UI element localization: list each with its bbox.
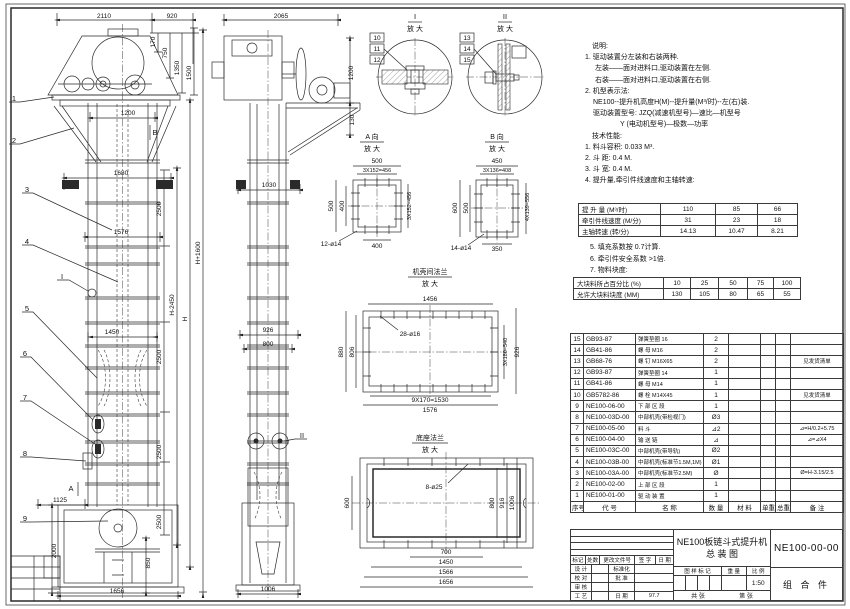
tb-cell [635,565,673,573]
perf-row: 提 升 量 (M³/时)1108566 [579,204,798,215]
bom-total-weight [776,423,791,434]
bom-seq: 9 [571,401,584,412]
balloon-14: 14 [463,46,471,53]
bom-remark [791,445,844,456]
bom-code: NE100-02-00 [584,479,636,490]
tb-process-label: 工 艺 [571,592,592,600]
perf-value: 66 [758,204,798,215]
dim-850: 850 [145,557,152,568]
bom-seq: 13 [571,356,584,367]
bom-qty: 1 [704,490,729,501]
bom-material [729,445,761,456]
tb-cell [592,574,609,582]
dim-400-a-left: 400 [339,200,346,211]
bom-name: 驱 动 装 置 [636,490,704,501]
balloon-12: 12 [373,57,381,64]
lump-value: 100 [774,278,801,289]
bom-unit-weight [761,423,776,434]
bom-qty: 1 [704,401,729,412]
bom-seq: 1 [571,490,584,501]
bom-material [729,345,761,356]
dim-350: 350 [492,246,503,253]
bom-unit-weight [761,389,776,400]
dim-750: 750 [162,47,169,58]
bom-remark [791,334,844,345]
bom-qty: 2 [704,356,729,367]
bom-header: 名 称 [636,501,704,512]
dim-700: 700 [441,549,452,556]
bom-qty: Ø1 [704,457,729,468]
bom-unit-weight [761,412,776,423]
dim-600-b: 600 [452,202,459,213]
stamp-header-scale: 比 例 [747,567,771,576]
bom-seq: 10 [571,389,584,400]
perf-label: 主轴转速 (转/分) [579,226,661,237]
bom-header: 单重 [761,501,776,512]
bom-total-weight [776,389,791,400]
bom-qty: Ø [704,468,729,479]
bom-code: NE100-03A-00 [584,468,636,479]
tb-standard-label: 标准化 [609,565,636,573]
balloon-15: 15 [463,57,471,64]
perf-value: 14.13 [661,226,716,237]
dim-14-holes: 14-ø14 [451,245,472,252]
bom-remark [791,345,844,356]
detail-a-mag: 放 大 [364,144,380,153]
bom-material [729,367,761,378]
dim-1125: 1125 [53,497,67,504]
drawing-title-line2: 总 装 图 [706,548,738,560]
bom-total-weight [776,345,791,356]
bom-row: 11GB41-86螺 母 M141 [571,378,844,389]
balloon-7: 7 [23,393,27,402]
bom-name: 螺 母 M16 [636,345,704,356]
bom-material [729,378,761,389]
note-line: 5. 填充系数按 0.7计算. [590,242,800,254]
bom-seq: 5 [571,445,584,456]
dim-450: 450 [492,158,503,165]
lump-label: 大块料所占百分比 (%) [574,278,664,289]
dim-1450: 1450 [105,329,120,336]
dim-12-holes: 12-ø14 [321,241,342,248]
perf-value: 31 [661,215,716,226]
tb-check-label: 校 对 [571,574,592,582]
note-line: 3. 斗 宽: 0.4 M. [578,164,842,175]
bom-remark [791,412,844,423]
rev-header-count: 处数 [586,556,601,564]
stamp-boxes [674,576,722,590]
rev-header-docno: 更改文件号 [600,556,634,564]
lump-value: 130 [664,289,691,300]
detail-ii-title: II [503,12,507,21]
bom-code: GB93-87 [584,334,636,345]
bom-row: 7NE100-05-00料 斗⊿2⊿=H/0.2+5.75 [571,423,844,434]
perf-label: 提 升 量 (M³/时) [579,204,661,215]
detail-b-title: B 向 [490,132,504,141]
balloon-3: 3 [25,185,29,194]
performance-table: 提 升 量 (M³/时)1108566牵引件线速度 (M/分)312318主轴转… [578,203,798,237]
detail-b-mag: 放 大 [489,144,505,153]
dim-500-a-top: 500 [372,158,383,165]
dim-130: 130 [349,114,356,125]
dim-2065: 2065 [274,13,289,20]
balloon-10: 10 [373,35,381,42]
bom-remark: ⊿=⊿X4 [791,434,844,445]
bom-code: GB68-76 [584,356,636,367]
dim-3x180: 3X180=540 [503,338,509,366]
bom-qty: 2 [704,345,729,356]
flange-mag: 放 大 [422,279,438,288]
bom-row: 2NE100-02-00上 部 区 段1 [571,479,844,490]
tb-design-label: 设 计 [571,565,592,573]
dim-h-1600: H+1600 [195,241,202,264]
bom-qty: ⊿2 [704,423,729,434]
tb-cell [609,583,636,591]
dim-2500-a: 2500 [156,201,163,216]
bom-total-weight [776,479,791,490]
tb-cell [592,565,609,573]
detail-view-base-flange: 底座法兰 放 大 8-ø25 600 800 916 1006 700 1450… [344,433,540,587]
bom-seq: 2 [571,479,584,490]
bom-code: GB41-86 [584,345,636,356]
balloon-1: 1 [12,94,16,103]
bom-seq: 11 [571,378,584,389]
bom-name: 螺 母 M14 [636,378,704,389]
dim-920: 920 [167,13,178,20]
side-elevation-view: 2065 1200 130 1030 926 800 II 1006 [212,13,360,598]
parts-list-table: 15GB93-87弹簧垫圈 16214GB41-86螺 母 M16213GB68… [570,333,844,513]
dim-2500-c: 2500 [156,444,163,459]
tb-audit-label: 审 核 [571,583,592,591]
bom-row: 12GB93-87弹簧垫圈 141 [571,367,844,378]
front-elevation-view [44,24,184,598]
bom-row: 8NE100-03D-00中部机壳(带检视门)Ø3 [571,412,844,423]
bom-seq: 7 [571,423,584,434]
detail-view-ii: II 放 大 13 14 15 [460,12,544,116]
balloon-9: 9 [23,514,27,523]
note-line: 4. 提升量,牵引件线速度和主轴转速: [578,175,842,186]
lump-row: 大块料所占百分比 (%)10255075100 [574,278,801,289]
lump-value: 10 [664,278,691,289]
perf-value: 18 [758,215,798,226]
perf-value: 10.47 [716,226,758,237]
bom-total-weight [776,490,791,501]
bom-code: GB5782-86 [584,389,636,400]
drawing-number: NE100-00-00 [771,530,842,568]
bom-remark [791,479,844,490]
dim-4x139: 4X139=556 [525,193,531,221]
balloon-8: 8 [23,449,27,458]
lump-value: 75 [748,278,774,289]
dim-2110: 2110 [97,13,111,20]
bom-qty: 1 [704,378,729,389]
perf-row: 主轴转速 (转/分)14.1310.478.21 [579,226,798,237]
bom-unit-weight [761,367,776,378]
stamp-header-weight: 重 量 [722,567,747,576]
bom-code: GB41-86 [584,378,636,389]
dim-1680: 1680 [114,170,129,177]
balloon-4: 4 [25,237,29,246]
dim-8-holes: 8-ø25 [426,484,443,491]
bom-header: 备 注 [791,501,844,512]
dim-500-b: 500 [463,202,470,213]
detail-ii-mag: 放 大 [497,24,513,33]
bom-material [729,457,761,468]
detail-view-casing-flange: 机壳间法兰 放 大 1456 28-ø16 880 806 3X180=540 … [338,267,521,414]
lump-value: 65 [748,289,774,300]
dim-1350: 1350 [174,60,181,75]
dim-1656-base: 1656 [439,579,454,586]
bom-total-weight [776,434,791,445]
bom-unit-weight [761,378,776,389]
bom-seq: 8 [571,412,584,423]
bom-name: 螺 栓 M14X45 [636,389,704,400]
note-line: 1. 驱动装置分左装和右装两种. [578,52,842,63]
dim-1450-base: 1450 [439,559,454,566]
dim-h-2450: H-2450 [169,294,176,316]
bom-row: 3NE100-03A-00中部机壳(标准节2.5M)ØØ=H-3.15/2.5 [571,468,844,479]
detail-view-a: A 向 放 大 500 3X152=456 500 400 3X152=456 … [321,132,413,250]
dim-1576-flange: 1576 [423,407,438,414]
tb-approve-label: 批 准 [609,574,636,582]
dim-3x152-right: 3X152=456 [407,192,413,220]
bom-unit-weight [761,434,776,445]
bom-name: 弹簧垫圈 14 [636,367,704,378]
bom-qty: Ø3 [704,412,729,423]
dim-926-side: 926 [263,327,274,334]
title-block-center: NE100板链斗式提升机 总 装 图 图 样 标 记 重 量 比 例 1:50 … [674,530,771,600]
bom-name: 螺 钉 M16X65 [636,356,704,367]
note-line: 2. 机型表示法: [578,86,842,97]
rev-header-date: 日 期 [656,556,673,564]
bom-seq: 3 [571,468,584,479]
bom-unit-weight [761,445,776,456]
lump-value: 50 [719,278,748,289]
bom-remark [791,490,844,501]
dim-880: 880 [338,346,345,357]
bom-name: 输 送 链 [636,434,704,445]
flange-title: 机壳间法兰 [413,267,448,276]
bom-unit-weight [761,457,776,468]
detail-i-title: I [414,12,416,21]
bom-name: 下 部 区 段 [636,401,704,412]
dim-926-flange: 926 [514,346,521,357]
bom-name: 弹簧垫圈 16 [636,334,704,345]
detail-i-mag: 放 大 [407,24,423,33]
bom-code: NE100-06-00 [584,401,636,412]
tb-date-value: 97.7 [635,592,673,600]
dim-1030: 1030 [262,182,277,189]
lump-value: 80 [719,289,748,300]
bom-code: GB93-87 [584,367,636,378]
note-line: NE100--提升机高度H(M)--提升量(M³/时)--左(右)装. [578,97,842,108]
bom-unit-weight [761,468,776,479]
bom-material [729,479,761,490]
engineering-drawing-sheet: 2110 920 170 750 1350 1500 1200 B 1680 2… [0,0,850,609]
bom-code: NE100-04-00 [584,434,636,445]
tb-cell [635,574,673,582]
bom-header: 总重 [776,501,791,512]
bom-code: NE100-03D-00 [584,412,636,423]
dim-1576: 1576 [114,229,129,236]
bom-remark [791,367,844,378]
bom-material [729,334,761,345]
bom-unit-weight [761,401,776,412]
bom-header: 数 量 [704,501,729,512]
bom-unit-weight [761,345,776,356]
perf-label: 牵引件线速度 (M/分) [579,215,661,226]
bom-qty: 1 [704,389,729,400]
general-notes: 说明:1. 驱动装置分左装和右装两种.左装——面对进料口,驱动装置在左侧.右装—… [578,41,842,187]
bom-row: 5NE100-03C-00中部机壳(带导轨)Ø2 [571,445,844,456]
bom-total-weight [776,445,791,456]
dim-800-base: 800 [489,497,496,508]
bom-remark [791,378,844,389]
drawing-title-line1: NE100板链斗式提升机 [677,536,768,548]
bom-material [729,490,761,501]
detail-ii-marker: II [300,431,304,440]
bom-code: NE100-05-00 [584,423,636,434]
tb-cell [592,592,609,600]
lump-value: 55 [774,289,801,300]
dim-916: 916 [499,497,506,508]
bom-total-weight [776,412,791,423]
bom-material [729,468,761,479]
bom-remark: ⊿=H/0.2+5.75 [791,423,844,434]
dim-1656-front: 1656 [110,588,125,595]
dim-806: 806 [349,346,356,357]
bom-material [729,356,761,367]
bom-remark: Ø=H-3.15/2.5 [791,468,844,479]
title-block-right: NE100-00-00 组 合 件 [771,530,842,600]
bom-total-weight [776,334,791,345]
perf-row: 牵引件线速度 (M/分)312318 [579,215,798,226]
dim-170: 170 [150,36,157,47]
bom-remark: 见发货清单 [791,356,844,367]
dim-800-side: 800 [263,341,274,348]
bom-material [729,434,761,445]
detail-view-i: I 放 大 10 11 12 [370,12,454,116]
note-line: 6. 牵引件安全系数 >1倍. [590,254,800,266]
bom-unit-weight [761,479,776,490]
bom-remark: 见发货清单 [791,389,844,400]
bom-qty: 2 [704,334,729,345]
bom-seq: 6 [571,434,584,445]
dim-2000: 2000 [51,543,58,558]
bom-name: 料 斗 [636,423,704,434]
dim-2500-b: 2500 [156,349,163,364]
perf-value: 110 [661,204,716,215]
bom-total-weight [776,468,791,479]
bom-header: 材 料 [729,501,761,512]
bom-name: 中部机壳(带检视门) [636,412,704,423]
bom-seq: 4 [571,457,584,468]
balloon-13: 13 [463,35,471,42]
note-line: Y (电动机型号)—极数—功率 [578,119,842,130]
bom-total-weight [776,367,791,378]
tb-cell [635,583,673,591]
bom-header: 序号 [571,501,584,512]
scale-value: 1:50 [747,576,771,590]
bom-row: 1NE100-01-00驱 动 装 置1 [571,490,844,501]
dim-28-holes: 28-ø16 [400,331,421,338]
sheet-count: 共 张 [691,591,705,600]
bom-row: 9NE100-06-00下 部 区 段1 [571,401,844,412]
front-dimension-lines [9,13,207,599]
general-notes-continued: 5. 填充系数按 0.7计算.6. 牵引件安全系数 >1倍.7. 物料块度: [590,242,800,277]
bom-qty: Ø2 [704,445,729,456]
stamp-header-mark: 图 样 标 记 [674,567,722,576]
bom-material [729,389,761,400]
dim-3x136: 3X136=408 [483,168,511,174]
bom-name: 中部机壳(标准节1.5M,1M) [636,457,704,468]
perf-value: 8.21 [758,226,798,237]
bom-qty: 1 [704,367,729,378]
title-block-revision-area: 标记 处数 更改文件号 签 字 日 期 设 计 标准化 校 对 批 准 审 核 … [571,530,674,600]
bom-total-weight [776,378,791,389]
lump-size-table: 大块料所占百分比 (%)10255075100允许大块料块度 (MM)13010… [573,277,801,300]
bom-material [729,423,761,434]
base-mag: 放 大 [422,445,438,454]
note-line: 2. 斗 距: 0.4 M. [578,153,842,164]
weight-cell [722,576,747,590]
bom-seq: 12 [571,367,584,378]
note-line: 右装——面对进料口,驱动装置在右侧. [578,75,842,86]
rev-header-sign: 签 字 [635,556,657,564]
note-line: 技术性能: [578,131,842,142]
balloon-11: 11 [374,46,381,53]
bom-qty: ⊿ [704,434,729,445]
bom-material [729,412,761,423]
dim-1006: 1006 [261,586,276,593]
bom-header-row: 序号代 号名 称数 量材 料单重总重备 注 [571,501,844,512]
bom-row: 4NE100-03B-00中部机壳(标准节1.5M,1M)Ø1 [571,457,844,468]
bom-total-weight [776,356,791,367]
bom-remark [791,401,844,412]
detail-view-b: B 向 放 大 450 3X136=408 600 500 4X139=556 … [451,132,531,253]
bom-name: 上 部 区 段 [636,479,704,490]
bom-unit-weight [761,490,776,501]
detail-a-title: A 向 [365,132,378,141]
rev-header-mark: 标记 [571,556,586,564]
bom-seq: 14 [571,345,584,356]
base-title: 底座法兰 [416,433,444,442]
dim-400-a-bottom: 400 [372,243,383,250]
bom-row: 10GB5782-86螺 栓 M14X451见发货清单 [571,389,844,400]
tb-cell [592,583,609,591]
note-line: 左装——面对进料口,驱动装置在左侧. [578,63,842,74]
dim-1566: 1566 [439,569,454,576]
dim-1200-side: 1200 [348,65,355,80]
bom-qty: 1 [704,479,729,490]
balloon-5: 5 [25,304,29,313]
bom-code: NE100-01-00 [584,490,636,501]
bom-code: NE100-03B-00 [584,457,636,468]
note-line: 7. 物料块度: [590,265,800,277]
dim-2500-d: 2500 [156,514,163,529]
dim-1200: 1200 [121,110,136,117]
dim-h: H [182,316,189,321]
bom-code: NE100-03C-00 [584,445,636,456]
dim-600-base: 600 [344,497,351,508]
bom-total-weight [776,457,791,468]
bom-row: 13GB68-76螺 钉 M16X652见发货清单 [571,356,844,367]
lump-label: 允许大块料块度 (MM) [574,289,664,300]
note-line: 1. 料斗容积: 0.033 M³. [578,142,842,153]
bom-unit-weight [761,356,776,367]
sheet-number: 第 张 [739,591,753,600]
bom-row: 6NE100-04-00输 送 链⊿⊿=⊿X4 [571,434,844,445]
